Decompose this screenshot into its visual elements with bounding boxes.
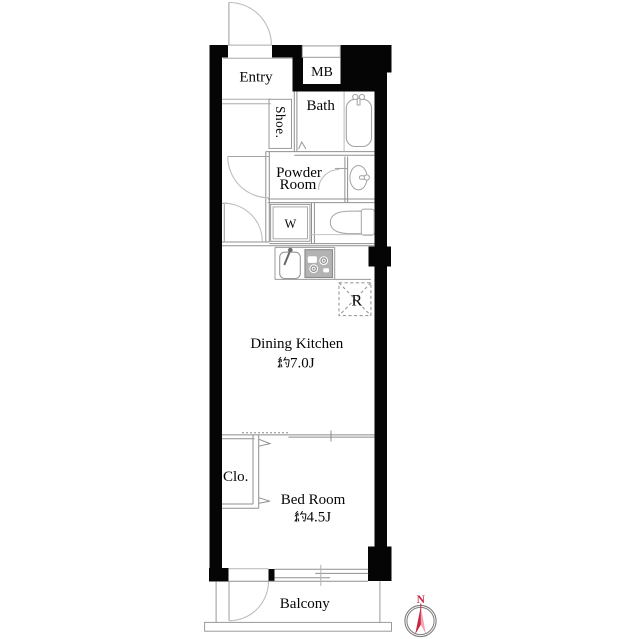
svg-text:Shoe.: Shoe. [273,106,288,138]
svg-text:R: R [351,293,362,310]
svg-text:Entry: Entry [239,69,273,85]
svg-text:Bath: Bath [307,98,336,114]
svg-text:7.0J: 7.0J [290,356,315,372]
svg-text:Bed Room: Bed Room [281,492,346,508]
svg-text:Dining Kitchen: Dining Kitchen [250,336,343,352]
svg-text:Room: Room [280,177,317,193]
svg-text:Clo.: Clo. [223,469,248,485]
svg-text:4.5J: 4.5J [307,510,332,526]
svg-text:Balcony: Balcony [280,596,330,612]
svg-text:N: N [417,594,426,606]
svg-text:W: W [284,217,296,231]
svg-text:MB: MB [311,65,333,80]
